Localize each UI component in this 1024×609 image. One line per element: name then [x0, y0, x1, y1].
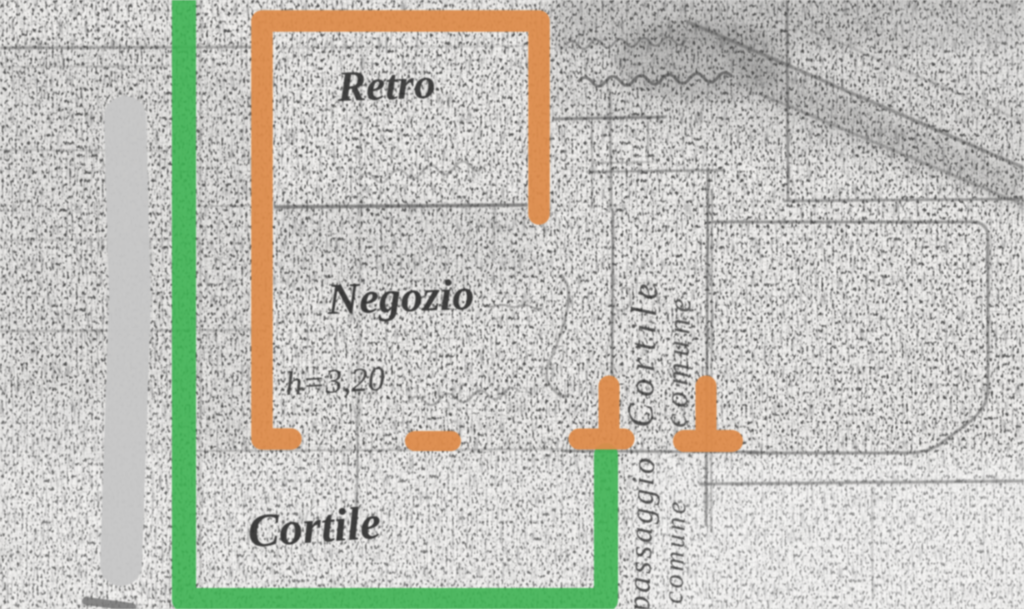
- svg-text:Retro: Retro: [336, 61, 437, 111]
- svg-text:comune: comune: [657, 292, 698, 429]
- svg-text:comune: comune: [658, 498, 693, 604]
- svg-text:Negozio: Negozio: [326, 270, 475, 324]
- svg-text:passaggio: passaggio: [620, 454, 662, 609]
- svg-text:h=3,20: h=3,20: [284, 361, 385, 403]
- svg-text:Cortile: Cortile: [246, 497, 382, 558]
